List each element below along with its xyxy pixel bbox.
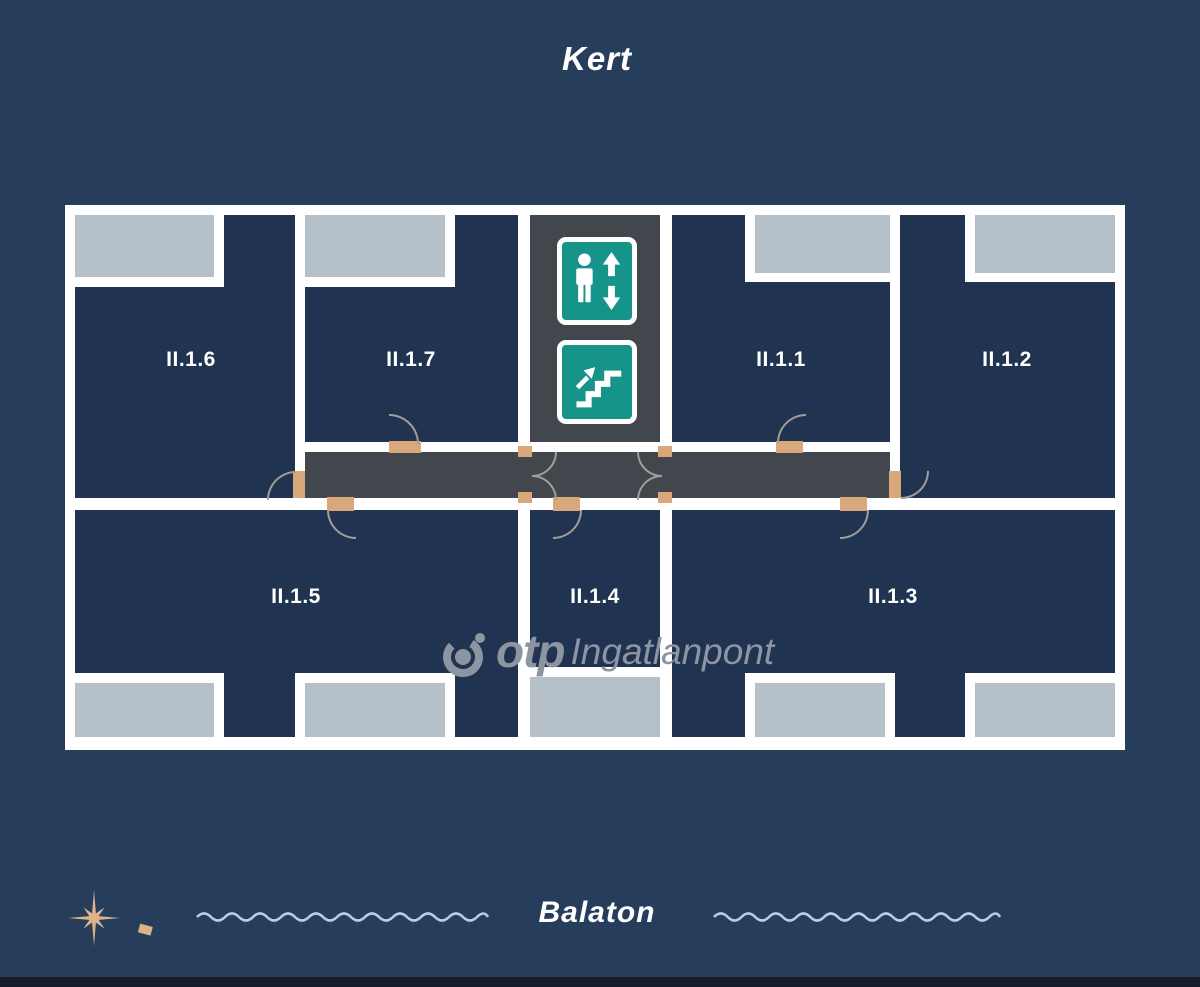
wall (580, 498, 840, 510)
wall (421, 442, 776, 452)
wall (885, 683, 895, 737)
wall (890, 215, 900, 472)
wall (214, 673, 224, 737)
balcony-u5-left (75, 683, 214, 737)
wall (965, 673, 1115, 683)
bottom-bar (0, 977, 1200, 987)
wall (518, 215, 530, 452)
balcony-u7 (305, 215, 445, 277)
door-u3 (840, 497, 867, 511)
balcony-u2 (975, 215, 1115, 273)
stairs-icon (569, 353, 625, 411)
balcony-u5-right (305, 683, 445, 737)
wall (745, 273, 890, 282)
unit-label-u3: II.1.3 (868, 585, 918, 609)
elevator-sign (557, 237, 637, 325)
wall (965, 215, 975, 282)
door-u2 (889, 471, 901, 498)
wall (295, 215, 305, 472)
wall (965, 273, 1115, 282)
wall (660, 510, 672, 737)
wall (305, 277, 455, 287)
wall (745, 683, 755, 737)
door-shaft-left (518, 492, 532, 503)
unit-label-u5: II.1.5 (271, 585, 321, 609)
door-u4 (553, 497, 580, 511)
stairs-sign (557, 340, 637, 424)
water-wave-line-right (712, 908, 1002, 926)
watermark: otp Ingatlanpont (440, 628, 774, 680)
watermark-brand: otp (496, 624, 565, 678)
door-u5 (327, 497, 354, 511)
balcony-u3-left (755, 683, 885, 737)
wall (305, 442, 389, 452)
wall (803, 442, 890, 452)
wall (660, 215, 672, 452)
watermark-suffix: Ingatlanpont (571, 631, 775, 673)
wall (295, 673, 455, 683)
unit-label-u4: II.1.4 (570, 585, 620, 609)
wall (867, 498, 1115, 510)
balcony-u3-right (975, 683, 1115, 737)
unit-label-u7: II.1.7 (386, 348, 436, 372)
wall (965, 683, 975, 737)
unit-label-u2: II.1.2 (982, 348, 1032, 372)
garden-label: Kert (562, 40, 632, 78)
unit-label-u1: II.1.1 (756, 348, 806, 372)
lake-label: Balaton (538, 896, 655, 930)
wall (445, 683, 455, 737)
unit-label-u6: II.1.6 (166, 348, 216, 372)
otp-logo-icon (440, 628, 490, 680)
floorplan-page: { "labels": { "garden": "Kert", "lake": … (0, 0, 1200, 987)
wall (75, 673, 224, 683)
door-shaft-left (518, 446, 532, 457)
water-wave-line-left (195, 908, 490, 926)
wall (295, 683, 305, 737)
balcony-u1 (755, 215, 890, 273)
balcony-u6 (75, 215, 214, 277)
wall (745, 215, 755, 282)
corridor (305, 452, 890, 498)
wall (75, 277, 224, 287)
compass-rose-icon (62, 882, 162, 952)
balcony-u4 (530, 677, 660, 737)
elevator-icon (568, 249, 626, 313)
